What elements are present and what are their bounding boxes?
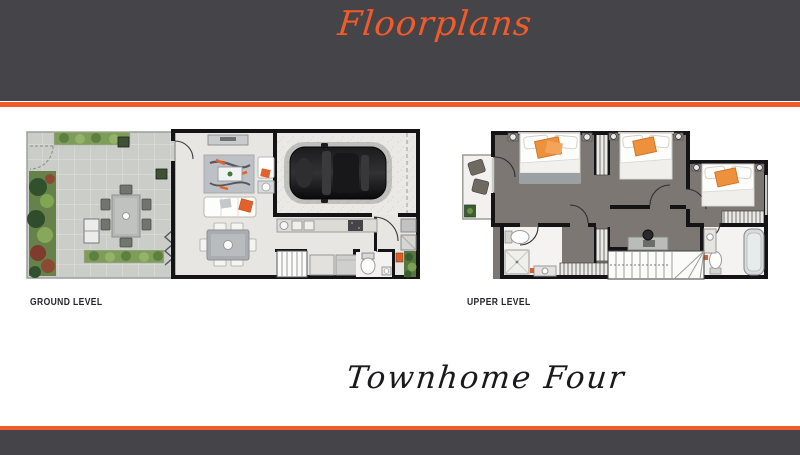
- stairs-icon: [608, 251, 704, 279]
- kitchen-counter-icon: [277, 219, 377, 232]
- upper-level-label: UPPER LEVEL: [467, 296, 531, 307]
- toilet-icon: [361, 258, 375, 274]
- storage-unit-icon: [84, 219, 99, 243]
- balcony: [463, 155, 494, 219]
- hedge-bottom: [84, 250, 164, 263]
- footer-banner: [0, 430, 800, 455]
- utility-box-icon: [118, 137, 129, 147]
- utility-box-icon: [156, 169, 167, 179]
- hot-water-unit-icon: [396, 253, 403, 262]
- coffee-table-icon: [218, 167, 242, 181]
- robe-hatch: [560, 263, 608, 277]
- wardrobe-hatch: [596, 229, 608, 261]
- powder-room: [356, 252, 392, 277]
- ground-level-drawing: [26, 129, 420, 281]
- car-icon: [284, 142, 392, 204]
- vanity-icon: [704, 229, 716, 253]
- header-accent-stripe: [0, 102, 800, 107]
- ground-level-label: GROUND LEVEL: [30, 296, 102, 307]
- bed-icon-bed3: [692, 164, 764, 206]
- robe-hatch: [722, 211, 764, 224]
- garden-bed-left: [27, 171, 56, 278]
- ground-level-plan: [26, 129, 420, 281]
- stairs-icon: [277, 251, 307, 277]
- wardrobe-hatch: [596, 133, 608, 175]
- fridge-pantry-icon: [401, 219, 416, 250]
- page-title: Floorplans: [336, 4, 534, 44]
- bed-icon-master: [508, 133, 592, 183]
- toilet-icon: [710, 252, 722, 269]
- upper-level-drawing: [462, 131, 768, 281]
- garden-corner: [404, 251, 417, 278]
- armchair-icon: [258, 157, 274, 178]
- toilet-icon: [511, 231, 529, 244]
- sofa-icon: [204, 197, 256, 217]
- bed-icon-bed2: [609, 133, 683, 179]
- upper-level-plan: [462, 131, 768, 281]
- townhome-caption: Townhome Four: [345, 360, 628, 396]
- tv-unit-icon: [208, 135, 248, 145]
- header-banner: Floorplans: [0, 0, 800, 101]
- floorplan-brochure-page: Floorplans: [0, 0, 800, 455]
- side-table-icon: [258, 181, 274, 193]
